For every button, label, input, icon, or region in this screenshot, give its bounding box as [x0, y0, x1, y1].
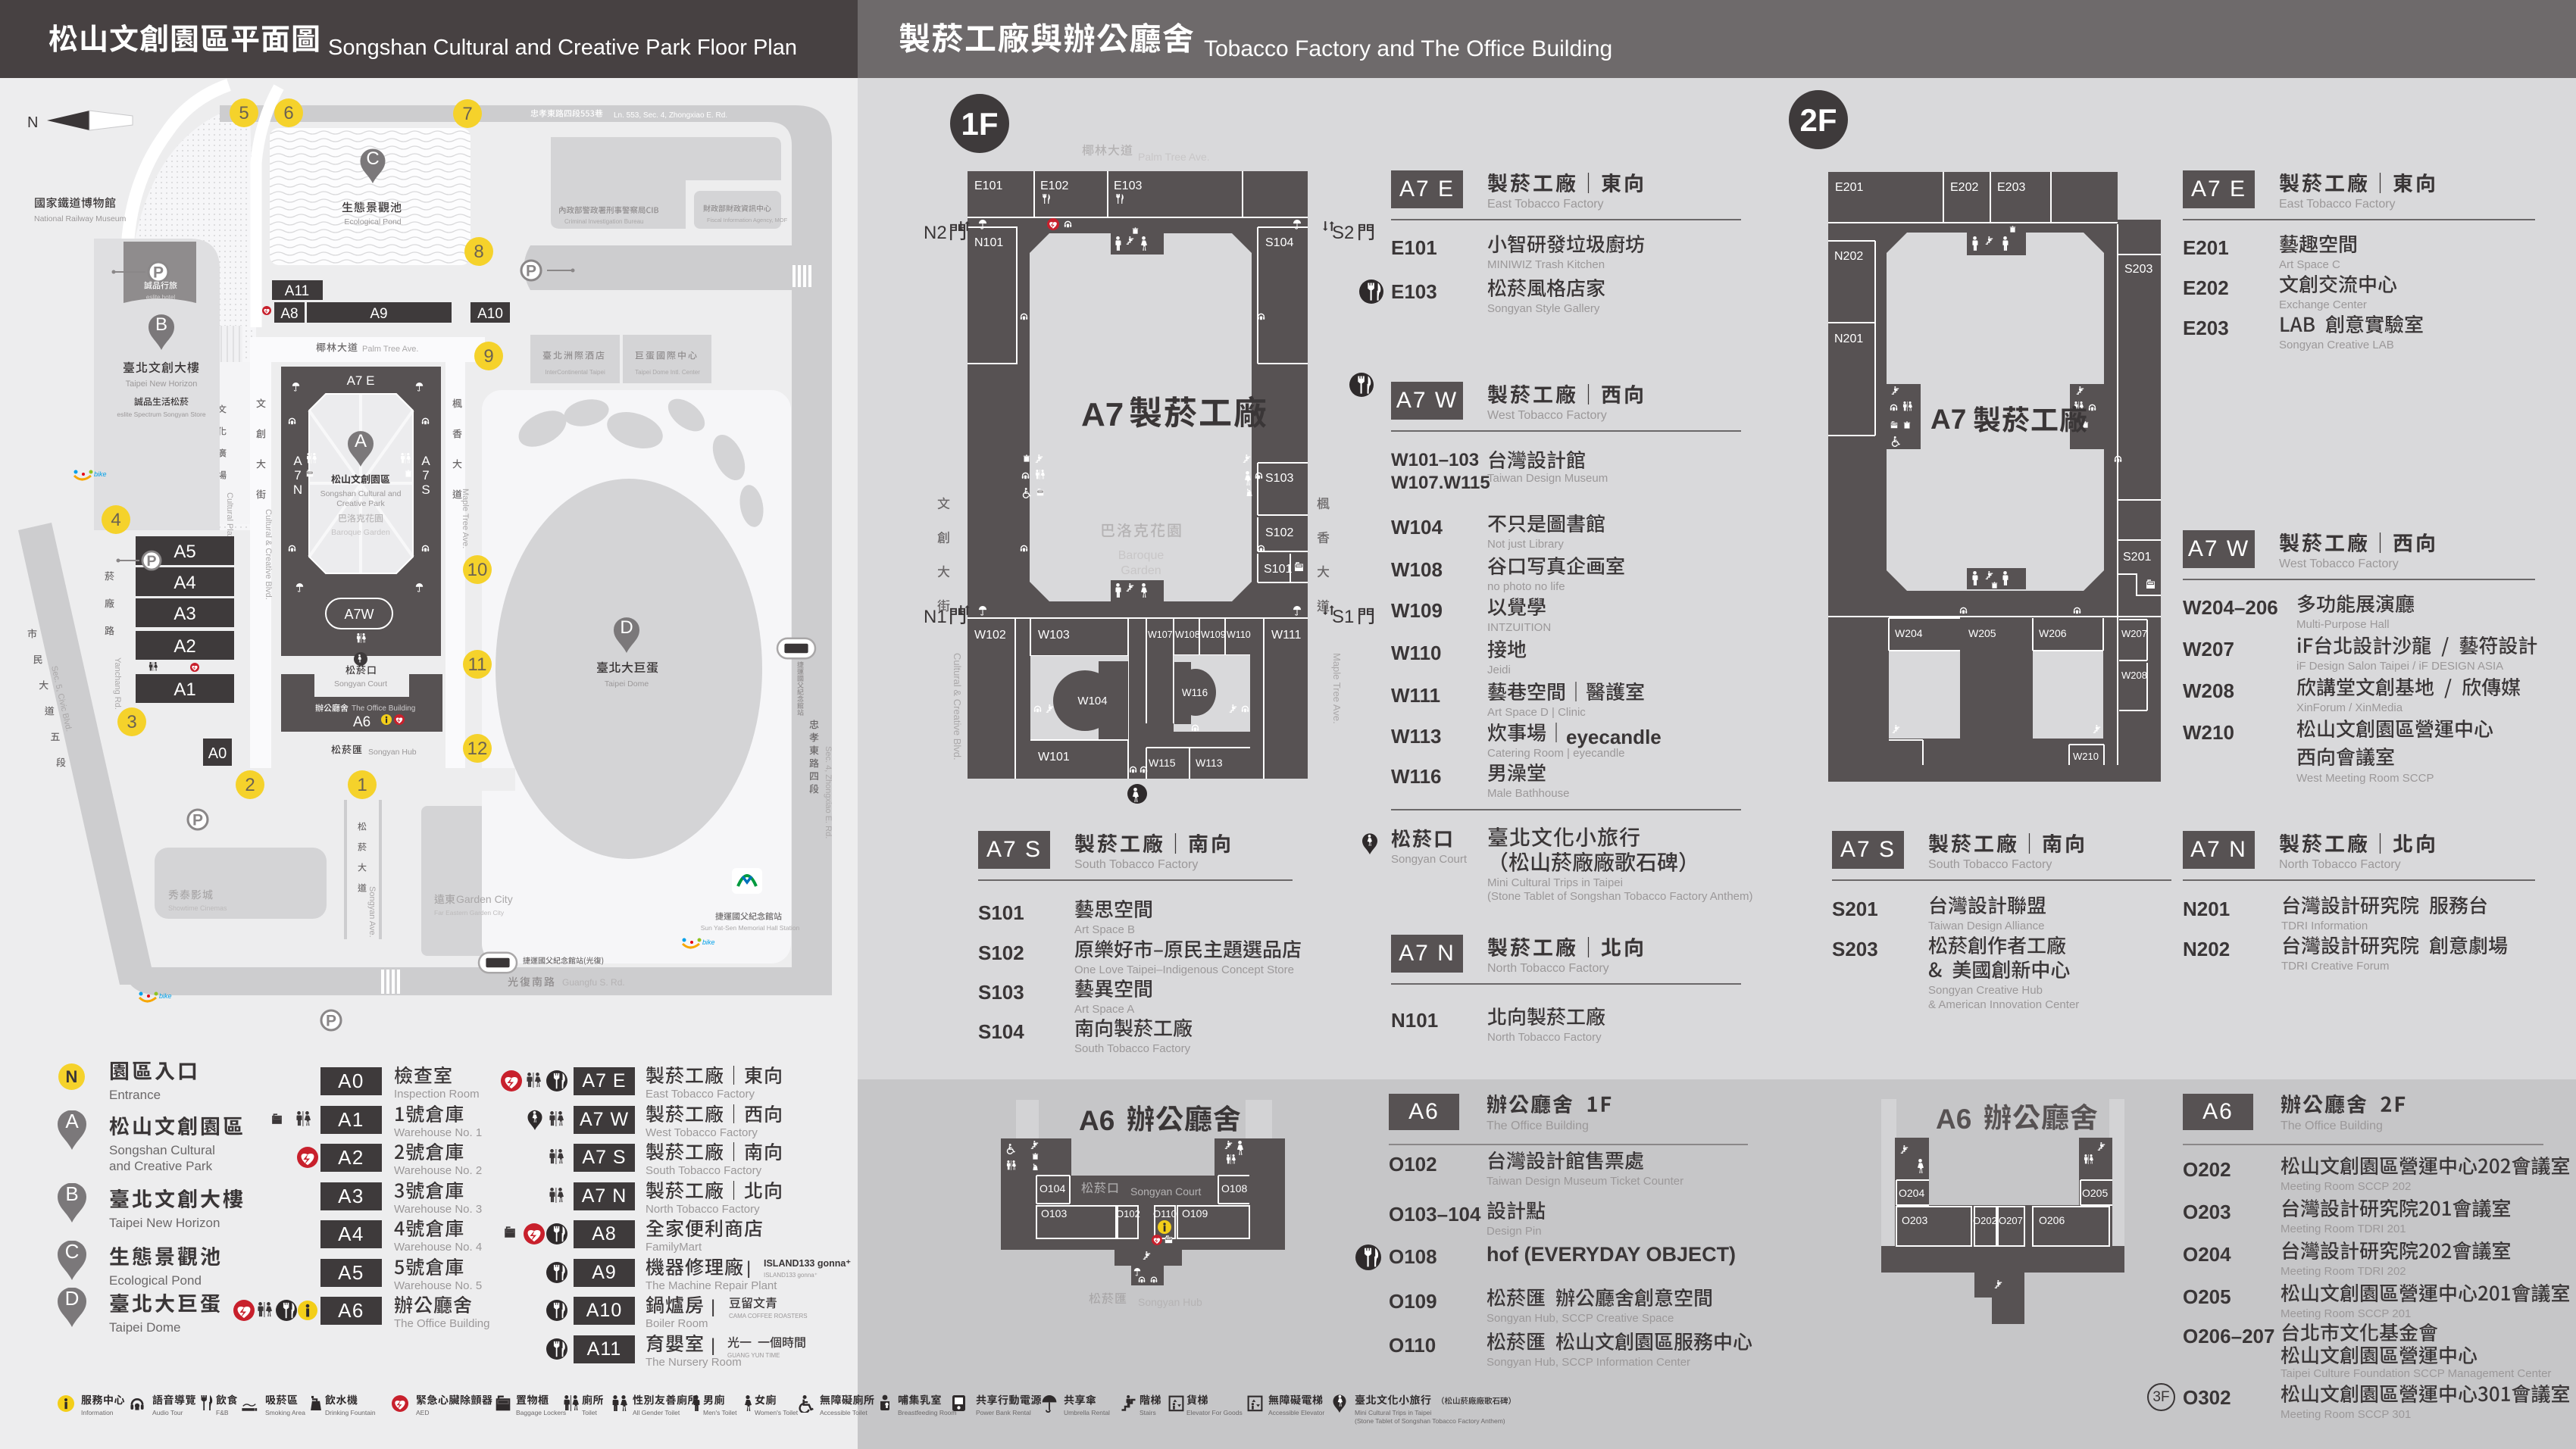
svg-text:7: 7 [462, 104, 472, 124]
svg-text:S2: S2 [1332, 223, 1354, 243]
svg-text:W206: W206 [2039, 627, 2067, 639]
svg-text:W110: W110 [1227, 629, 1251, 640]
svg-text:W116: W116 [1182, 687, 1208, 698]
svg-text:E101: E101 [974, 180, 1002, 192]
svg-text:O102: O102 [1116, 1208, 1140, 1219]
svg-text:W101: W101 [1038, 751, 1070, 764]
svg-text:InterContinental Taipei: InterContinental Taipei [545, 369, 605, 376]
svg-text:E103: E103 [1114, 180, 1142, 192]
svg-text:A7S: A7S [421, 454, 430, 497]
svg-text:A7N: A7N [293, 454, 302, 497]
svg-text:N202: N202 [1834, 250, 1863, 263]
svg-text:B: B [65, 1183, 78, 1205]
svg-text:Yanchang Rd.: Yanchang Rd. [113, 657, 122, 710]
svg-text:A6: A6 [1079, 1105, 1114, 1136]
svg-text:W108: W108 [1175, 629, 1200, 640]
svg-text:O206: O206 [2039, 1214, 2065, 1226]
svg-text:N2: N2 [924, 223, 947, 243]
svg-text:S104: S104 [1265, 236, 1293, 249]
svg-text:1: 1 [357, 775, 367, 795]
svg-text:N201: N201 [1834, 333, 1863, 345]
svg-text:S201: S201 [2123, 551, 2151, 564]
svg-text:1F: 1F [961, 106, 998, 142]
svg-text:Palm Tree Ave.: Palm Tree Ave. [1138, 151, 1210, 163]
svg-text:A11: A11 [285, 283, 309, 299]
svg-text:12: 12 [467, 739, 488, 759]
svg-text:P: P [192, 811, 203, 829]
svg-text:5: 5 [239, 103, 249, 123]
svg-text:S203: S203 [2124, 263, 2152, 276]
svg-text:Baroque: Baroque [1118, 549, 1165, 562]
svg-text:Maple Tree Ave.: Maple Tree Ave. [1331, 653, 1343, 724]
svg-text:Creative Park: Creative Park [336, 499, 385, 508]
svg-text:D: D [65, 1288, 80, 1310]
svg-text:C: C [366, 148, 379, 169]
svg-text:bike: bike [159, 992, 172, 1000]
svg-text:A7W: A7W [344, 607, 374, 622]
svg-text:A10: A10 [477, 306, 503, 322]
svg-text:W104: W104 [1077, 695, 1107, 707]
svg-text:P: P [153, 264, 164, 281]
svg-text:A7: A7 [1081, 396, 1124, 433]
svg-text:O203: O203 [1902, 1214, 1927, 1226]
svg-text:Ecological Pond: Ecological Pond [344, 217, 401, 226]
svg-text:eslite hotel: eslite hotel [146, 294, 175, 301]
svg-text:bike: bike [702, 938, 715, 946]
svg-text:A4: A4 [174, 573, 195, 593]
svg-text:P: P [326, 1012, 336, 1029]
svg-text:W210: W210 [2073, 751, 2099, 762]
svg-text:D: D [620, 617, 633, 638]
svg-text:A5: A5 [174, 542, 195, 562]
svg-text:Cultural & Creative Blvd.: Cultural & Creative Blvd. [952, 653, 963, 760]
svg-text:Guangfu S. Rd.: Guangfu S. Rd. [562, 977, 625, 988]
svg-text:W204: W204 [1895, 627, 1923, 639]
svg-text:W107: W107 [1148, 629, 1173, 640]
svg-text:W111: W111 [1271, 629, 1302, 642]
svg-text:Songyan Hub: Songyan Hub [368, 748, 417, 757]
svg-text:N101: N101 [974, 236, 1003, 249]
svg-text:P: P [146, 553, 156, 570]
svg-text:11: 11 [468, 654, 487, 675]
svg-text:O103: O103 [1041, 1207, 1067, 1219]
svg-text:A7 E: A7 E [347, 373, 375, 388]
svg-text:W113: W113 [1196, 757, 1223, 769]
svg-text:O202: O202 [1973, 1215, 1997, 1226]
svg-text:W207: W207 [2121, 628, 2147, 639]
svg-text:4: 4 [111, 510, 120, 530]
svg-text:E203: E203 [1997, 181, 2025, 194]
svg-text:N: N [27, 114, 38, 131]
svg-text:O207: O207 [1999, 1215, 2023, 1226]
svg-text:O204: O204 [1899, 1187, 1924, 1199]
svg-text:Taipei Dome: Taipei Dome [605, 679, 649, 689]
svg-text:S101: S101 [1264, 563, 1292, 576]
svg-text:Criminal Investigation Bureau: Criminal Investigation Bureau [564, 218, 644, 225]
svg-text:Cultural & Creative Blvd.: Cultural & Creative Blvd. [264, 509, 273, 600]
svg-text:A6: A6 [353, 714, 370, 730]
svg-text:B: B [155, 314, 167, 335]
svg-text:C: C [65, 1241, 80, 1263]
svg-text:S103: S103 [1265, 472, 1293, 485]
svg-text:3: 3 [127, 712, 136, 732]
svg-text:P: P [526, 262, 536, 279]
svg-text:Songshan Cultural and: Songshan Cultural and [320, 489, 402, 498]
svg-text:W208: W208 [2121, 670, 2147, 681]
svg-text:Taipei New Horizon: Taipei New Horizon [126, 379, 198, 389]
svg-text:W109: W109 [1201, 629, 1226, 640]
svg-text:Songyan Court: Songyan Court [334, 679, 387, 689]
svg-text:W115: W115 [1149, 757, 1176, 769]
svg-text:O108: O108 [1221, 1182, 1247, 1194]
svg-text:bike: bike [94, 470, 107, 478]
svg-text:The Office Building: The Office Building [352, 704, 415, 713]
svg-text:Maple Tree Ave.: Maple Tree Ave. [461, 489, 470, 548]
svg-text:Far Eastern Garden City: Far Eastern Garden City [434, 909, 505, 917]
svg-text:6: 6 [283, 103, 293, 123]
svg-text:Sun Yat-Sen Memorial Hall Stat: Sun Yat-Sen Memorial Hall Station [701, 924, 800, 932]
svg-text:eslite Spectrum Songyan Store: eslite Spectrum Songyan Store [117, 411, 205, 418]
svg-text:E201: E201 [1835, 181, 1863, 194]
svg-text:A1: A1 [174, 679, 195, 700]
svg-text:10: 10 [467, 560, 488, 580]
svg-text:9: 9 [483, 346, 493, 367]
svg-text:Sec. 4, Zhongxiao E. Rd.: Sec. 4, Zhongxiao E. Rd. [824, 746, 833, 838]
svg-text:Ln. 553, Sec. 4, Zhongxiao E.: Ln. 553, Sec. 4, Zhongxiao E. Rd. [614, 111, 727, 120]
svg-text:O109: O109 [1182, 1207, 1208, 1219]
svg-text:W102: W102 [974, 629, 1006, 642]
svg-text:S1: S1 [1332, 607, 1354, 627]
svg-text:A2: A2 [174, 636, 195, 657]
svg-text:O104: O104 [1039, 1182, 1065, 1194]
svg-text:O205: O205 [2082, 1187, 2108, 1199]
svg-text:Songyan Hub: Songyan Hub [1138, 1296, 1202, 1308]
svg-text:8: 8 [474, 242, 483, 262]
svg-text:Palm Tree Ave.: Palm Tree Ave. [362, 345, 418, 354]
svg-text:National Railway Museum: National Railway Museum [34, 214, 127, 223]
svg-text:A3: A3 [174, 604, 195, 624]
svg-text:2F: 2F [1799, 102, 1837, 138]
svg-text:A0: A0 [208, 745, 227, 762]
svg-text:A: A [65, 1110, 79, 1132]
svg-text:A: A [355, 431, 367, 451]
svg-text:A7: A7 [1930, 404, 1966, 435]
svg-text:W103: W103 [1038, 629, 1070, 642]
svg-text:A9: A9 [370, 306, 387, 322]
svg-text:A6: A6 [1936, 1104, 1971, 1135]
svg-text:Garden: Garden [1121, 564, 1161, 577]
svg-text:Baroque Garden: Baroque Garden [331, 528, 390, 537]
svg-text:E202: E202 [1950, 181, 1978, 194]
svg-text:W205: W205 [1968, 627, 1996, 639]
svg-text:Showtime Cinemas: Showtime Cinemas [168, 904, 227, 912]
svg-text:Songyan Court: Songyan Court [1130, 1185, 1202, 1198]
svg-text:Taipei Dome Intl. Center: Taipei Dome Intl. Center [635, 369, 700, 376]
svg-text:Songyan Ave.: Songyan Ave. [367, 886, 377, 938]
svg-text:Garden City: Garden City [456, 893, 513, 905]
svg-text:O110: O110 [1153, 1208, 1177, 1219]
svg-text:E102: E102 [1040, 180, 1068, 192]
svg-text:Fiscal Information Agency, MOF: Fiscal Information Agency, MOF [707, 217, 788, 223]
svg-text:2: 2 [245, 775, 255, 795]
svg-text:S102: S102 [1265, 526, 1293, 539]
svg-text:A8: A8 [280, 306, 298, 322]
